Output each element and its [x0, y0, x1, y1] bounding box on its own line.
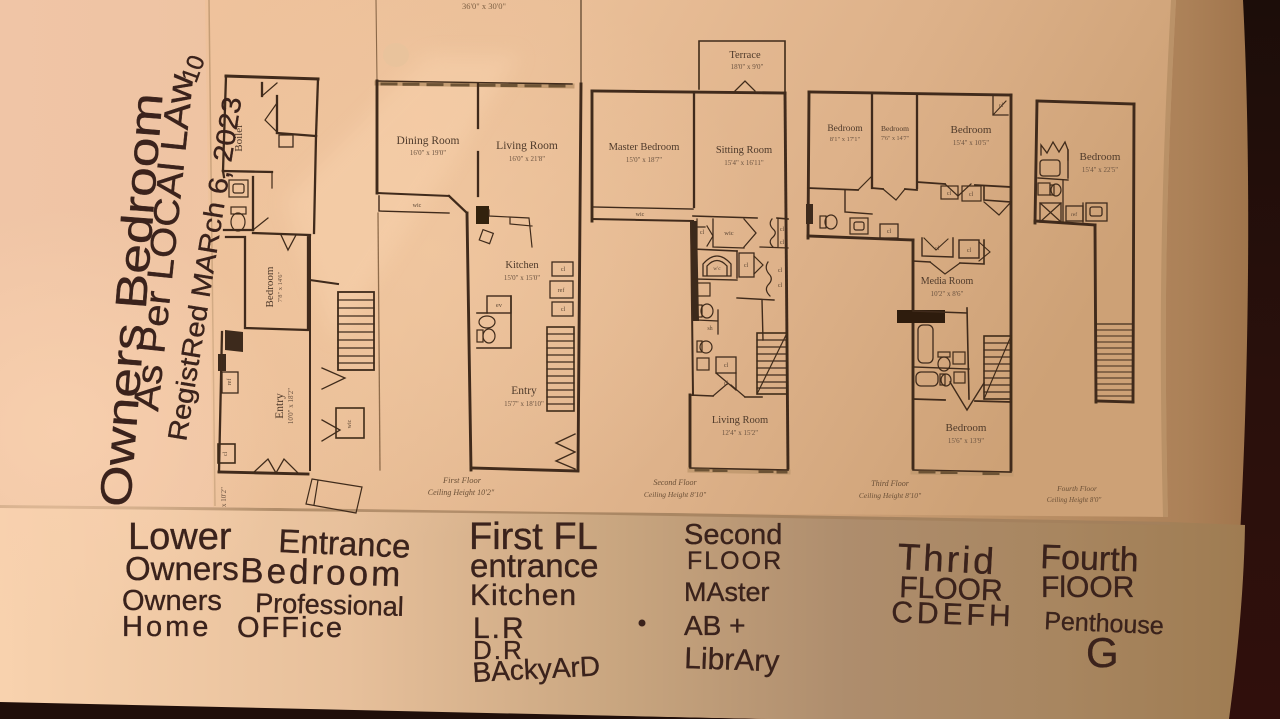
svg-text:ref: ref [1071, 211, 1077, 218]
svg-text:10'2" x 8'6": 10'2" x 8'6" [931, 290, 964, 298]
svg-text:Kitchen: Kitchen [470, 579, 577, 612]
svg-text:cl: cl [778, 283, 783, 289]
svg-text:FLOOR: FLOOR [687, 547, 783, 575]
svg-text:Entry: Entry [511, 385, 537, 397]
svg-text:cl: cl [887, 229, 892, 235]
svg-text:cl: cl [969, 192, 974, 198]
svg-text:Dining Room: Dining Room [397, 135, 460, 147]
svg-text:15'6" x 13'9": 15'6" x 13'9" [948, 437, 984, 445]
svg-text:Living Room: Living Room [712, 415, 768, 426]
svg-text:15'4" x 16'11": 15'4" x 16'11" [724, 159, 764, 167]
svg-text:w'c: w'c [713, 266, 721, 272]
svg-text:Entry: Entry [274, 393, 286, 419]
svg-text:cl: cl [700, 230, 705, 236]
svg-text:cl: cl [780, 240, 785, 246]
svg-text:cl: cl [744, 263, 749, 269]
svg-text:Third Floor: Third Floor [871, 479, 910, 488]
svg-text:cl: cl [947, 191, 952, 197]
svg-text:First Floor: First Floor [442, 475, 482, 485]
svg-text:LibrAry: LibrAry [684, 642, 780, 678]
svg-text:sh: sh [707, 326, 712, 332]
svg-text:Ceiling Height 10'2": Ceiling Height 10'2" [428, 488, 495, 497]
svg-text:Bedroom: Bedroom [881, 124, 909, 133]
svg-text:7'6" x 14'7": 7'6" x 14'7" [881, 136, 910, 142]
svg-text:G: G [1086, 629, 1119, 676]
svg-text:cl: cl [561, 267, 566, 273]
svg-text:Owners: Owners [125, 550, 239, 587]
svg-text:Bedroom: Bedroom [1080, 151, 1121, 163]
svg-text:FlOOR: FlOOR [1041, 571, 1134, 604]
svg-text:Fourth Floor: Fourth Floor [1056, 484, 1097, 493]
svg-text:cl: cl [724, 363, 729, 369]
svg-text:15'0" x 18'7": 15'0" x 18'7" [626, 156, 662, 164]
svg-text:wic: wic [413, 203, 422, 209]
svg-text:15'0" x 15'0": 15'0" x 15'0" [504, 274, 540, 282]
svg-text:7'8" x 14'6": 7'8" x 14'6" [277, 271, 284, 302]
svg-text:16'0" x 21'8": 16'0" x 21'8" [509, 155, 545, 163]
svg-text:wic: wic [724, 230, 734, 237]
svg-text:x 10'2": x 10'2" [220, 487, 228, 507]
svg-text:cl: cl [561, 307, 566, 313]
svg-text:ref: ref [558, 287, 565, 294]
svg-text:Bedroom: Bedroom [827, 124, 863, 134]
svg-text:Living Room: Living Room [496, 140, 558, 152]
svg-text:ref: ref [226, 379, 233, 386]
svg-text:CDEFH: CDEFH [891, 596, 1015, 633]
svg-text:Bedroom: Bedroom [951, 124, 992, 136]
svg-text:Media Room: Media Room [921, 276, 974, 287]
svg-text:10'0" x 18'2": 10'0" x 18'2" [287, 388, 295, 424]
svg-text:Kitchen: Kitchen [505, 260, 539, 271]
svg-text:cl: cl [999, 103, 1004, 109]
svg-text:Ceiling Height 8'10": Ceiling Height 8'10" [644, 490, 707, 499]
svg-text:MAster: MAster [684, 577, 770, 607]
svg-text:Bedroom: Bedroom [946, 422, 987, 434]
svg-text:Bedroom: Bedroom [264, 266, 276, 307]
svg-text:wic: wic [347, 419, 353, 428]
svg-text:cl: cl [967, 248, 972, 254]
svg-text:15'4" x 10'5": 15'4" x 10'5" [953, 139, 989, 147]
svg-text:ev: ev [496, 302, 503, 309]
svg-text:cl: cl [223, 452, 229, 457]
svg-text:Ceiling Height 8'0": Ceiling Height 8'0" [1047, 496, 1102, 504]
svg-text:Terrace: Terrace [729, 50, 761, 61]
svg-text:15'7" x 18'10": 15'7" x 18'10" [504, 400, 544, 408]
svg-text:AB +: AB + [684, 610, 745, 641]
svg-text:OFFice: OFFice [237, 612, 344, 644]
svg-text:36'0" x 30'0": 36'0" x 30'0" [462, 1, 506, 11]
svg-text:12'4" x 15'2": 12'4" x 15'2" [722, 429, 758, 437]
svg-text:Second Floor: Second Floor [653, 478, 697, 487]
svg-text:Sitting Room: Sitting Room [716, 145, 772, 156]
svg-text:cl: cl [780, 227, 785, 233]
svg-text:Home: Home [122, 611, 211, 643]
svg-text:15'4" x 22'5": 15'4" x 22'5" [1082, 166, 1118, 174]
svg-text:Ceiling Height 8'10": Ceiling Height 8'10" [859, 491, 922, 500]
svg-text:cl: cl [778, 268, 783, 274]
svg-text:Master Bedroom: Master Bedroom [609, 142, 680, 153]
svg-text:16'0" x 19'0": 16'0" x 19'0" [410, 149, 446, 157]
svg-text:wic: wic [636, 212, 645, 218]
svg-text:8'1" x 17'1": 8'1" x 17'1" [830, 136, 861, 143]
svg-text:18'0" x 9'0": 18'0" x 9'0" [731, 63, 764, 71]
